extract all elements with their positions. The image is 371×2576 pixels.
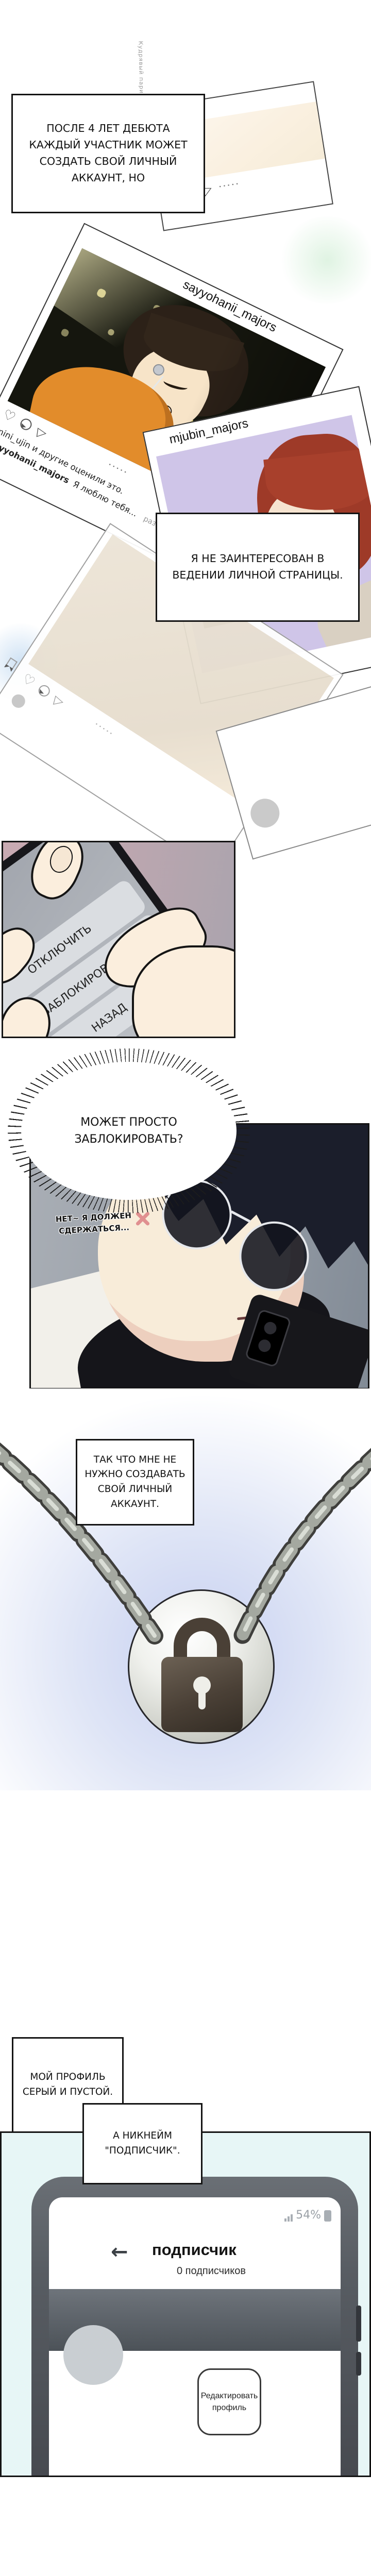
- carousel-dots: •••••: [218, 181, 241, 190]
- profile-phone-device: 54% ← подписчик 0 подписчиков Редактиров…: [31, 2177, 358, 2477]
- like-icon[interactable]: ♡: [20, 672, 37, 690]
- webtoon-page: ♡ ▷ ••••• Кудрявый парик После 4 лет деб…: [0, 0, 371, 2576]
- back-arrow-icon[interactable]: ←: [111, 2242, 128, 2262]
- signal-icon: [284, 2214, 293, 2222]
- share-icon[interactable]: ▷: [53, 693, 65, 708]
- profile-title: подписчик: [152, 2241, 237, 2259]
- comment-icon[interactable]: [19, 417, 33, 432]
- like-icon[interactable]: ♡: [1, 408, 18, 425]
- avatar: [247, 795, 283, 831]
- pastel-blob-green: [278, 216, 371, 304]
- status-bar: 54%: [284, 2209, 331, 2222]
- caption-box-1: После 4 лет дебюта каждый участник может…: [11, 94, 205, 213]
- inner-thought-text: Нет~ я должен сдержаться...: [47, 1209, 141, 1237]
- caption-box-2: Я не заинтересован в ведении личной стра…: [156, 513, 360, 622]
- battery-percent: 54%: [296, 2209, 321, 2222]
- caption-box-5: А никнейм "подписчик".: [82, 2103, 203, 2184]
- profile-subtitle: 0 подписчиков: [177, 2265, 246, 2277]
- phone-screen: 54% ← подписчик 0 подписчиков Редактиров…: [49, 2197, 341, 2477]
- comment-icon[interactable]: [37, 683, 52, 699]
- caption-box-3: Так что мне не нужно создавать свой личн…: [76, 1439, 194, 1526]
- carousel-dots: •••••: [107, 462, 129, 476]
- profile-avatar[interactable]: [63, 2325, 123, 2385]
- speech-bubble-blocking: Может просто заблокировать?: [8, 1048, 250, 1213]
- post-side-label: Кудрявый парик: [137, 41, 145, 97]
- panel-phone-menu: Отключить Заблокировать Назад: [2, 841, 235, 1038]
- power-button[interactable]: [356, 2352, 361, 2376]
- edit-profile-button[interactable]: Редактировать профиль: [197, 2368, 261, 2435]
- volume-button[interactable]: [356, 2306, 361, 2342]
- share-icon[interactable]: ▷: [37, 426, 48, 439]
- carousel-dots: •••••: [94, 722, 114, 738]
- avatar: [9, 692, 28, 710]
- battery-icon: [324, 2210, 331, 2222]
